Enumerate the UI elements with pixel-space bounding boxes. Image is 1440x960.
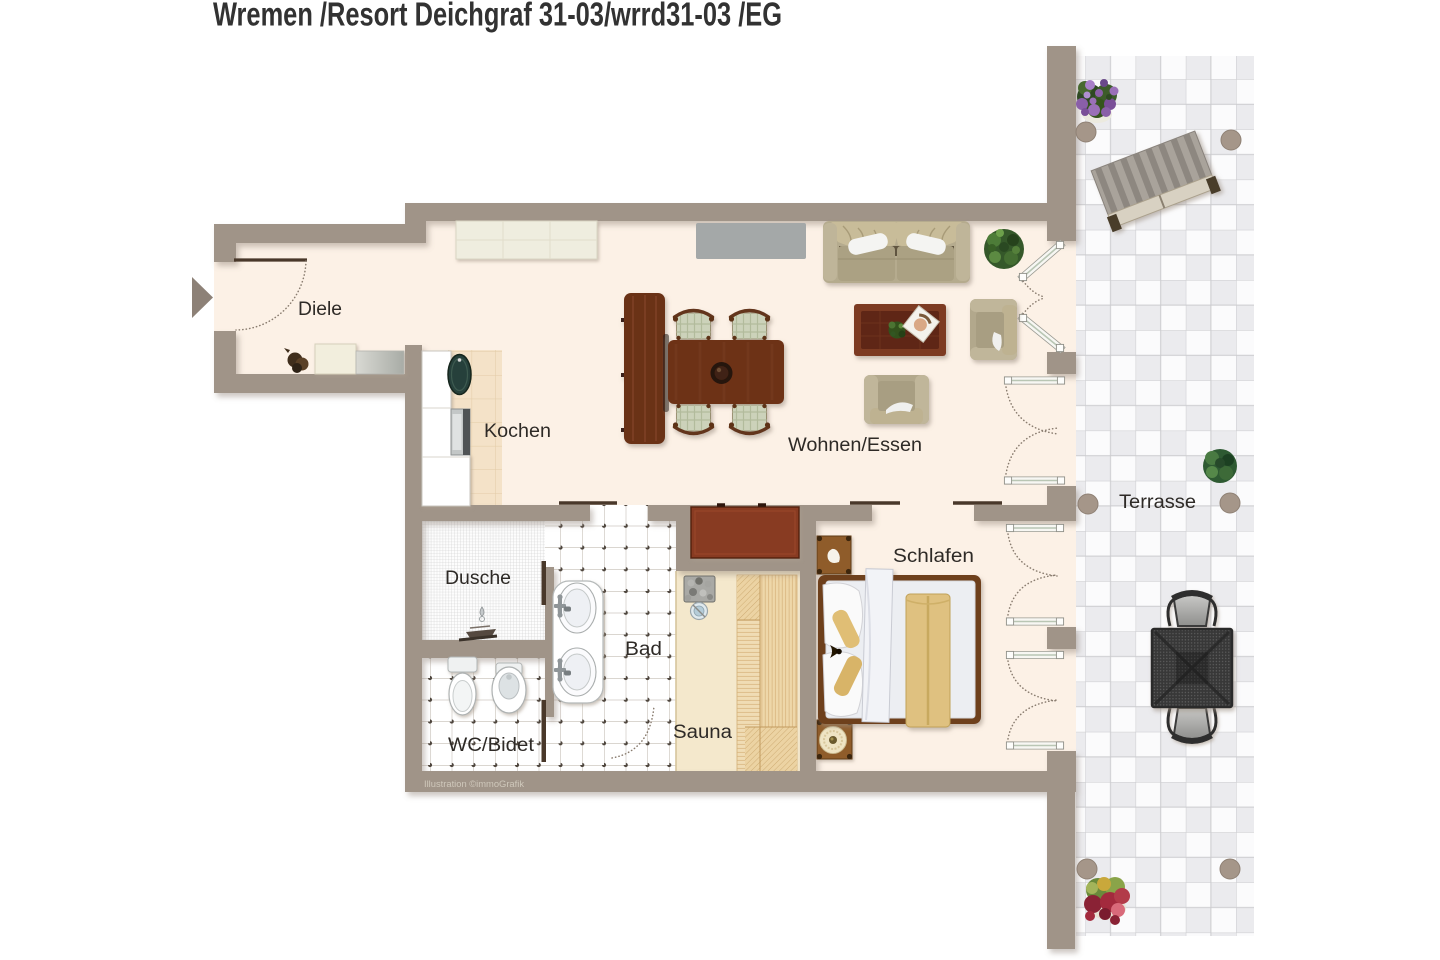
svg-text:Sauna: Sauna [673, 722, 732, 743]
svg-text:Bad: Bad [625, 639, 662, 660]
svg-text:Dusche: Dusche [445, 568, 511, 589]
svg-text:Kochen: Kochen [484, 421, 551, 442]
svg-text:Terrasse: Terrasse [1119, 492, 1196, 513]
svg-text:Schlafen: Schlafen [893, 546, 974, 567]
svg-text:Wremen /Resort Deichgraf 31-03: Wremen /Resort Deichgraf 31-03/wrrd31-03… [213, 0, 782, 33]
svg-text:WC/Bidet: WC/Bidet [448, 735, 535, 756]
svg-text:Diele: Diele [298, 299, 342, 320]
svg-text:Wohnen/Essen: Wohnen/Essen [788, 435, 922, 456]
svg-text:Illustration ©immoGrafik: Illustration ©immoGrafik [424, 779, 525, 789]
